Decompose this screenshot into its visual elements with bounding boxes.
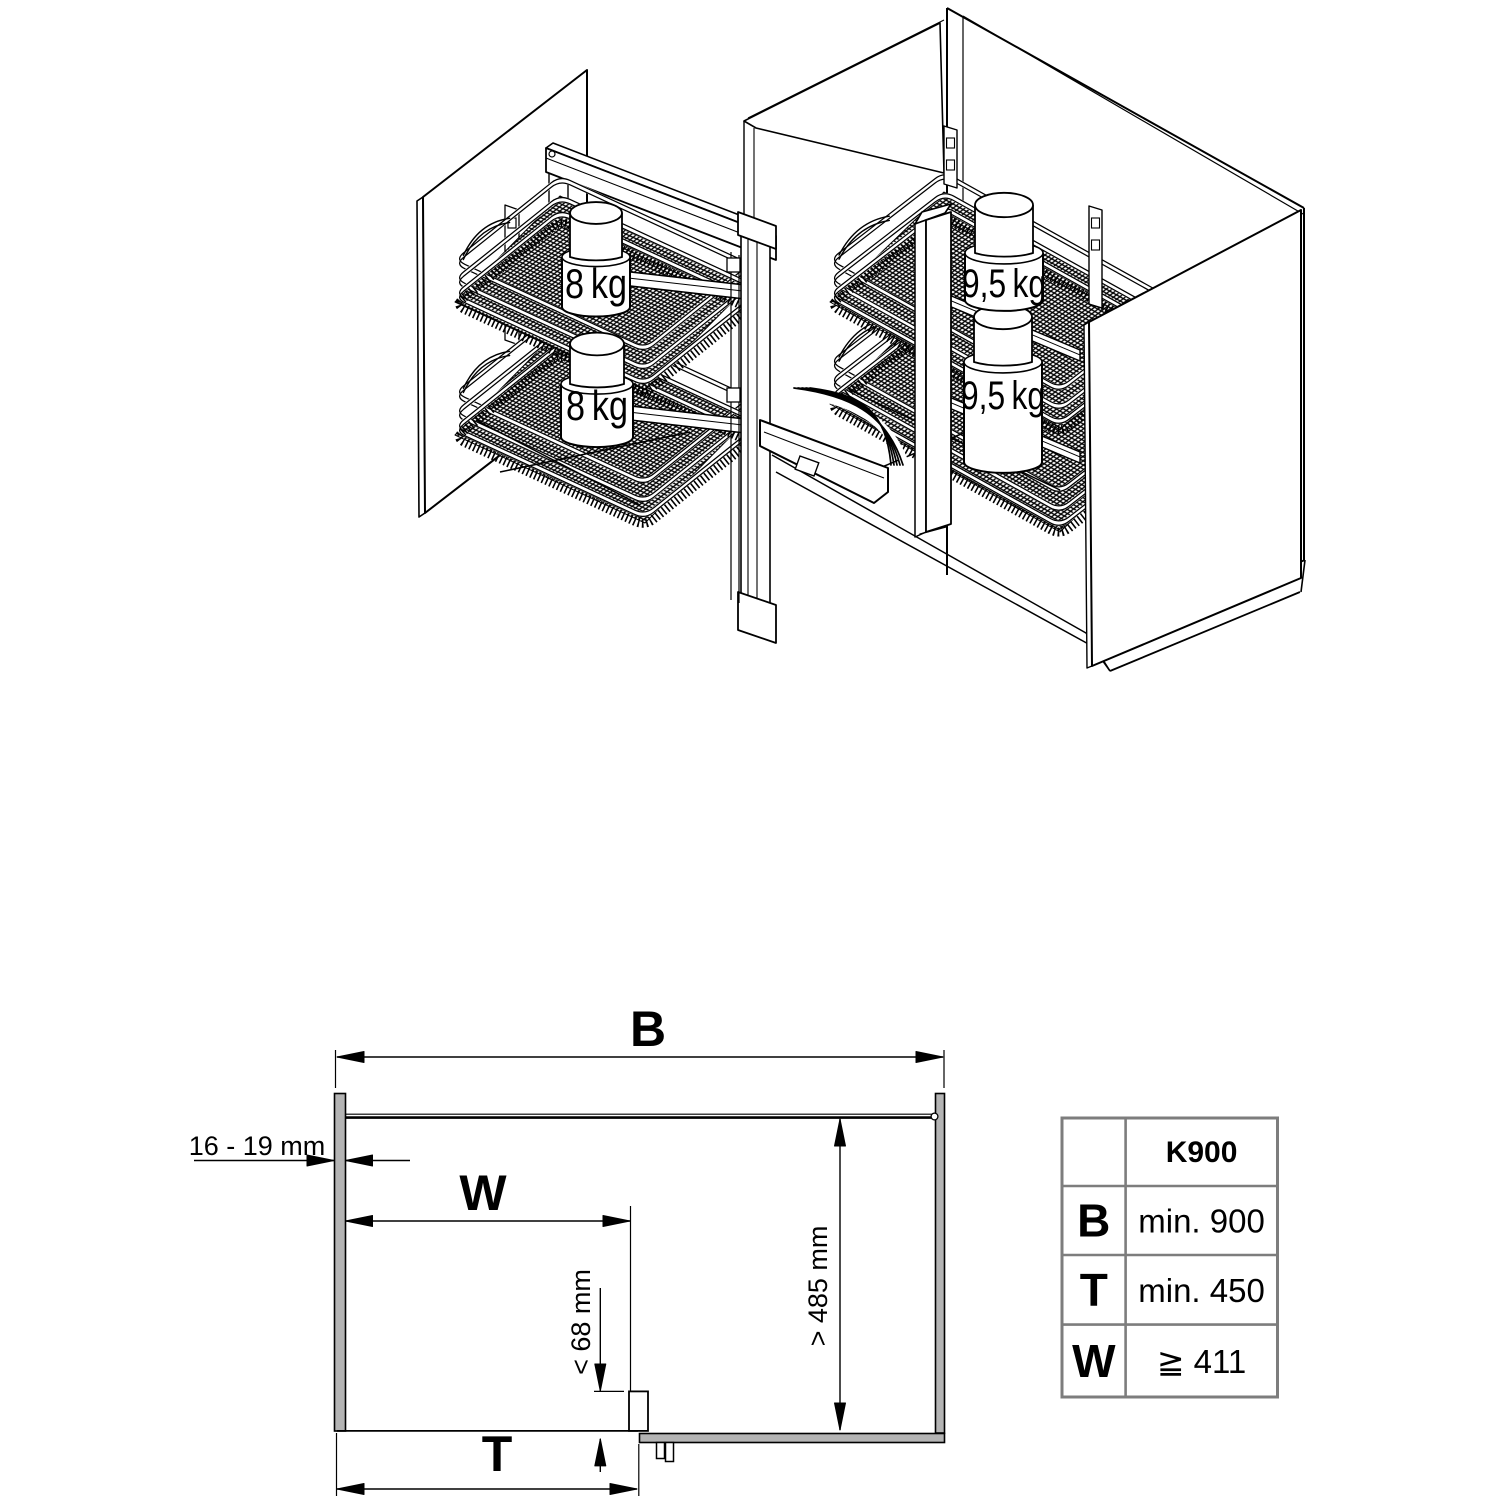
svg-text:< 68 mm: < 68 mm <box>566 1269 596 1375</box>
svg-text:T: T <box>1080 1264 1108 1316</box>
svg-text:W: W <box>1072 1335 1116 1387</box>
svg-text:9,5 kg: 9,5 kg <box>962 262 1046 306</box>
svg-text:> 485 mm: > 485 mm <box>803 1226 833 1347</box>
svg-text:9,5 kg: 9,5 kg <box>961 374 1045 418</box>
svg-text:min. 900: min. 900 <box>1138 1203 1265 1240</box>
svg-text:W: W <box>459 1165 507 1221</box>
svg-text:K900: K900 <box>1166 1136 1238 1169</box>
svg-text:≧ 411: ≧ 411 <box>1157 1343 1246 1380</box>
svg-text:8 kg: 8 kg <box>566 382 628 429</box>
svg-text:B: B <box>630 1001 666 1057</box>
svg-text:B: B <box>1077 1195 1110 1247</box>
svg-text:16 - 19 mm: 16 - 19 mm <box>189 1131 326 1161</box>
svg-text:min. 450: min. 450 <box>1138 1272 1265 1309</box>
svg-text:T: T <box>482 1426 513 1482</box>
svg-text:8 kg: 8 kg <box>565 260 627 307</box>
